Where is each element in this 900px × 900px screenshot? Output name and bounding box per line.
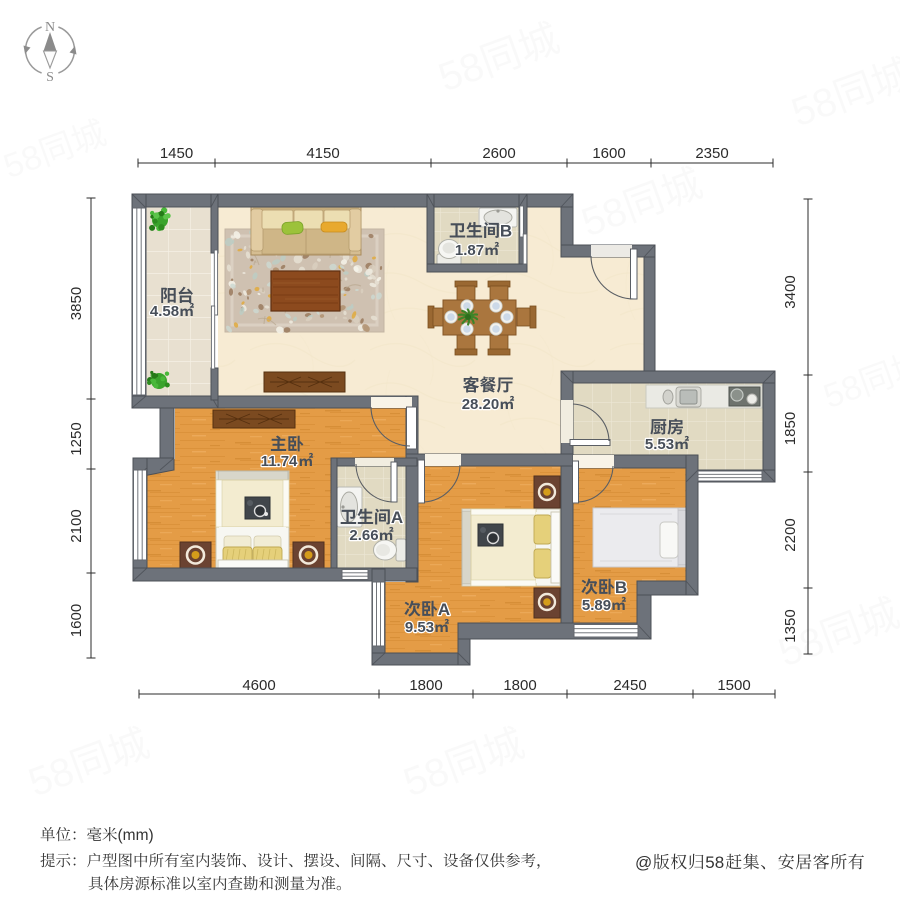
- svg-text:2600: 2600: [482, 145, 515, 162]
- svg-text:4.58: 4.58: [150, 303, 179, 320]
- svg-text:S: S: [46, 70, 54, 85]
- svg-text:A: A: [438, 600, 450, 619]
- svg-text:9.53: 9.53: [405, 619, 434, 636]
- svg-text:2450: 2450: [613, 677, 646, 694]
- svg-text:3850: 3850: [68, 287, 85, 320]
- svg-text:2100: 2100: [68, 509, 85, 542]
- svg-text:1250: 1250: [68, 422, 85, 455]
- svg-text:N: N: [45, 20, 55, 35]
- svg-text:58: 58: [705, 853, 724, 872]
- svg-text:28.20: 28.20: [462, 396, 500, 413]
- svg-text:1350: 1350: [782, 609, 799, 642]
- svg-text:B: B: [500, 222, 512, 241]
- svg-text:2350: 2350: [695, 145, 728, 162]
- svg-text:1800: 1800: [409, 677, 442, 694]
- svg-text:5.89: 5.89: [582, 597, 611, 614]
- svg-text:1.87: 1.87: [455, 242, 484, 259]
- svg-text:1800: 1800: [503, 677, 536, 694]
- svg-text:1600: 1600: [68, 604, 85, 637]
- svg-text:B: B: [615, 578, 627, 597]
- svg-text:2200: 2200: [782, 518, 799, 551]
- svg-text:(mm): (mm): [118, 827, 154, 844]
- svg-text:1850: 1850: [782, 412, 799, 445]
- svg-text:4150: 4150: [306, 145, 339, 162]
- svg-text:4600: 4600: [242, 677, 275, 694]
- svg-text:@: @: [635, 853, 652, 872]
- svg-text:1500: 1500: [717, 677, 750, 694]
- svg-text:1450: 1450: [160, 145, 193, 162]
- svg-text:3400: 3400: [782, 275, 799, 308]
- svg-text:2.66: 2.66: [349, 527, 378, 544]
- svg-text:11.74: 11.74: [261, 453, 298, 470]
- svg-text:1600: 1600: [592, 145, 625, 162]
- svg-text:5.53: 5.53: [645, 436, 674, 453]
- svg-text:A: A: [391, 508, 403, 527]
